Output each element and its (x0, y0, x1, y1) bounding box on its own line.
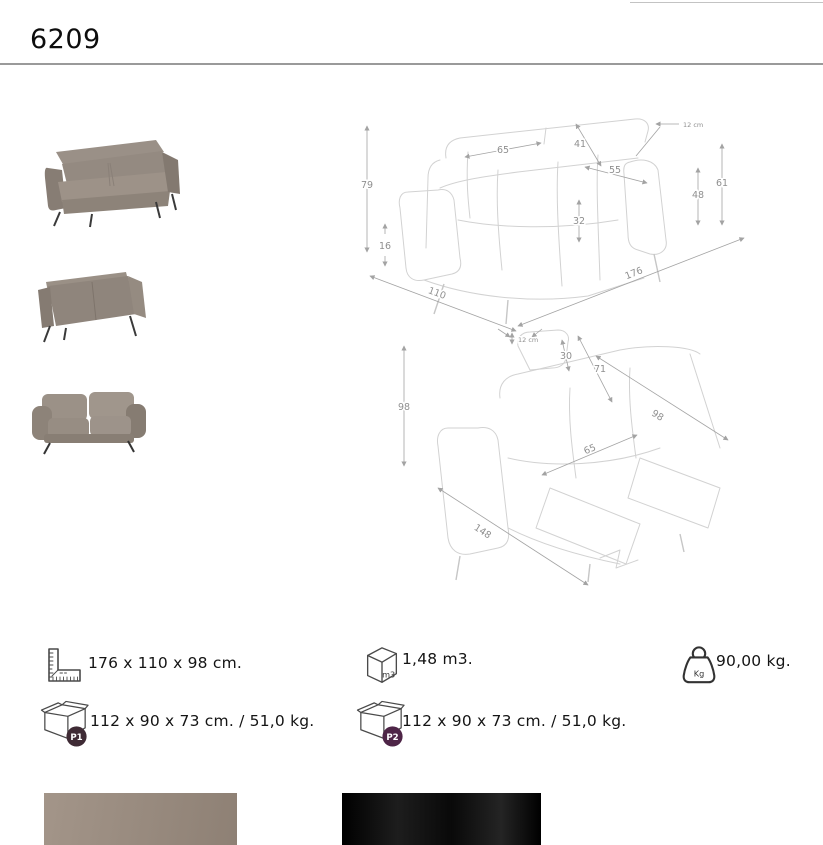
sofa-thumbnail-front (28, 386, 150, 456)
sofa-photo-front (32, 392, 146, 454)
package-badge-p1-label: P1 (70, 733, 82, 743)
dim-total-width: 176 (624, 265, 645, 282)
volume-cube-icon: m3 (360, 643, 404, 689)
dimension-lines-closed (367, 124, 744, 331)
dim-open-backrest-length: 71 (594, 364, 606, 375)
weight-text: 90,00 kg. (716, 652, 791, 670)
dim-recline-length: 98 (649, 408, 665, 424)
dimension-lines-open (404, 329, 728, 585)
volume-icon-label: m3 (382, 669, 395, 679)
dim-seat-depth: 55 (609, 165, 621, 176)
dim-headrest-height: 30 (560, 351, 572, 362)
fabric-swatch-black (342, 793, 541, 845)
package-badge-p2-label: P2 (386, 733, 398, 743)
dim-open-seat-width: 65 (582, 442, 597, 457)
dimension-labels-closed: 79 16 65 41 55 32 48 61 12 cm 176 110 (361, 121, 728, 302)
ruler-icon (42, 647, 82, 685)
sofa-thumbnail-rear (30, 268, 154, 348)
sofa-thumbnail-angled (36, 130, 182, 230)
top-corner-line (630, 2, 823, 3)
dim-open-headrest-extension: 12 cm (518, 336, 538, 344)
dim-open-height: 98 (398, 402, 410, 413)
package-box-icon-p2: P2 (356, 700, 406, 748)
dim-back-height: 61 (716, 178, 728, 189)
sofa-photo-angled (45, 140, 180, 227)
dim-open-depth: 148 (472, 522, 493, 541)
package-p1-text: 112 x 90 x 73 cm. / 51,0 kg. (90, 712, 314, 730)
package-box-icon-p1: P1 (40, 700, 90, 748)
technical-drawing-open: 98 12 cm 30 71 98 65 148 (390, 328, 750, 596)
volume-text: 1,48 m3. (402, 650, 473, 668)
header-divider (0, 63, 823, 65)
sofa-photo-rear (38, 272, 146, 342)
dim-leg-height: 16 (379, 241, 391, 252)
dim-backrest-length: 41 (574, 139, 586, 150)
package-p2-text: 112 x 90 x 73 cm. / 51,0 kg. (402, 712, 626, 730)
technical-drawing-closed: 79 16 65 41 55 32 48 61 12 cm 176 110 (348, 100, 758, 335)
overall-dimensions-text: 176 x 110 x 98 cm. (88, 654, 242, 672)
page-title: 6209 (30, 24, 101, 55)
dim-total-depth: 110 (426, 285, 447, 302)
product-spec-sheet: 6209 (0, 0, 823, 845)
weight-icon-label: Kg (694, 669, 704, 679)
dim-headrest-extension: 12 cm (683, 121, 703, 129)
sofa-legs-closed (434, 254, 660, 324)
fabric-swatch-taupe (44, 793, 237, 845)
weight-icon: Kg (678, 643, 720, 689)
dim-total-height: 79 (361, 180, 373, 191)
dim-seat-height: 32 (573, 216, 585, 227)
dim-headrest-width: 65 (497, 145, 509, 156)
dim-arm-height: 48 (692, 190, 704, 201)
